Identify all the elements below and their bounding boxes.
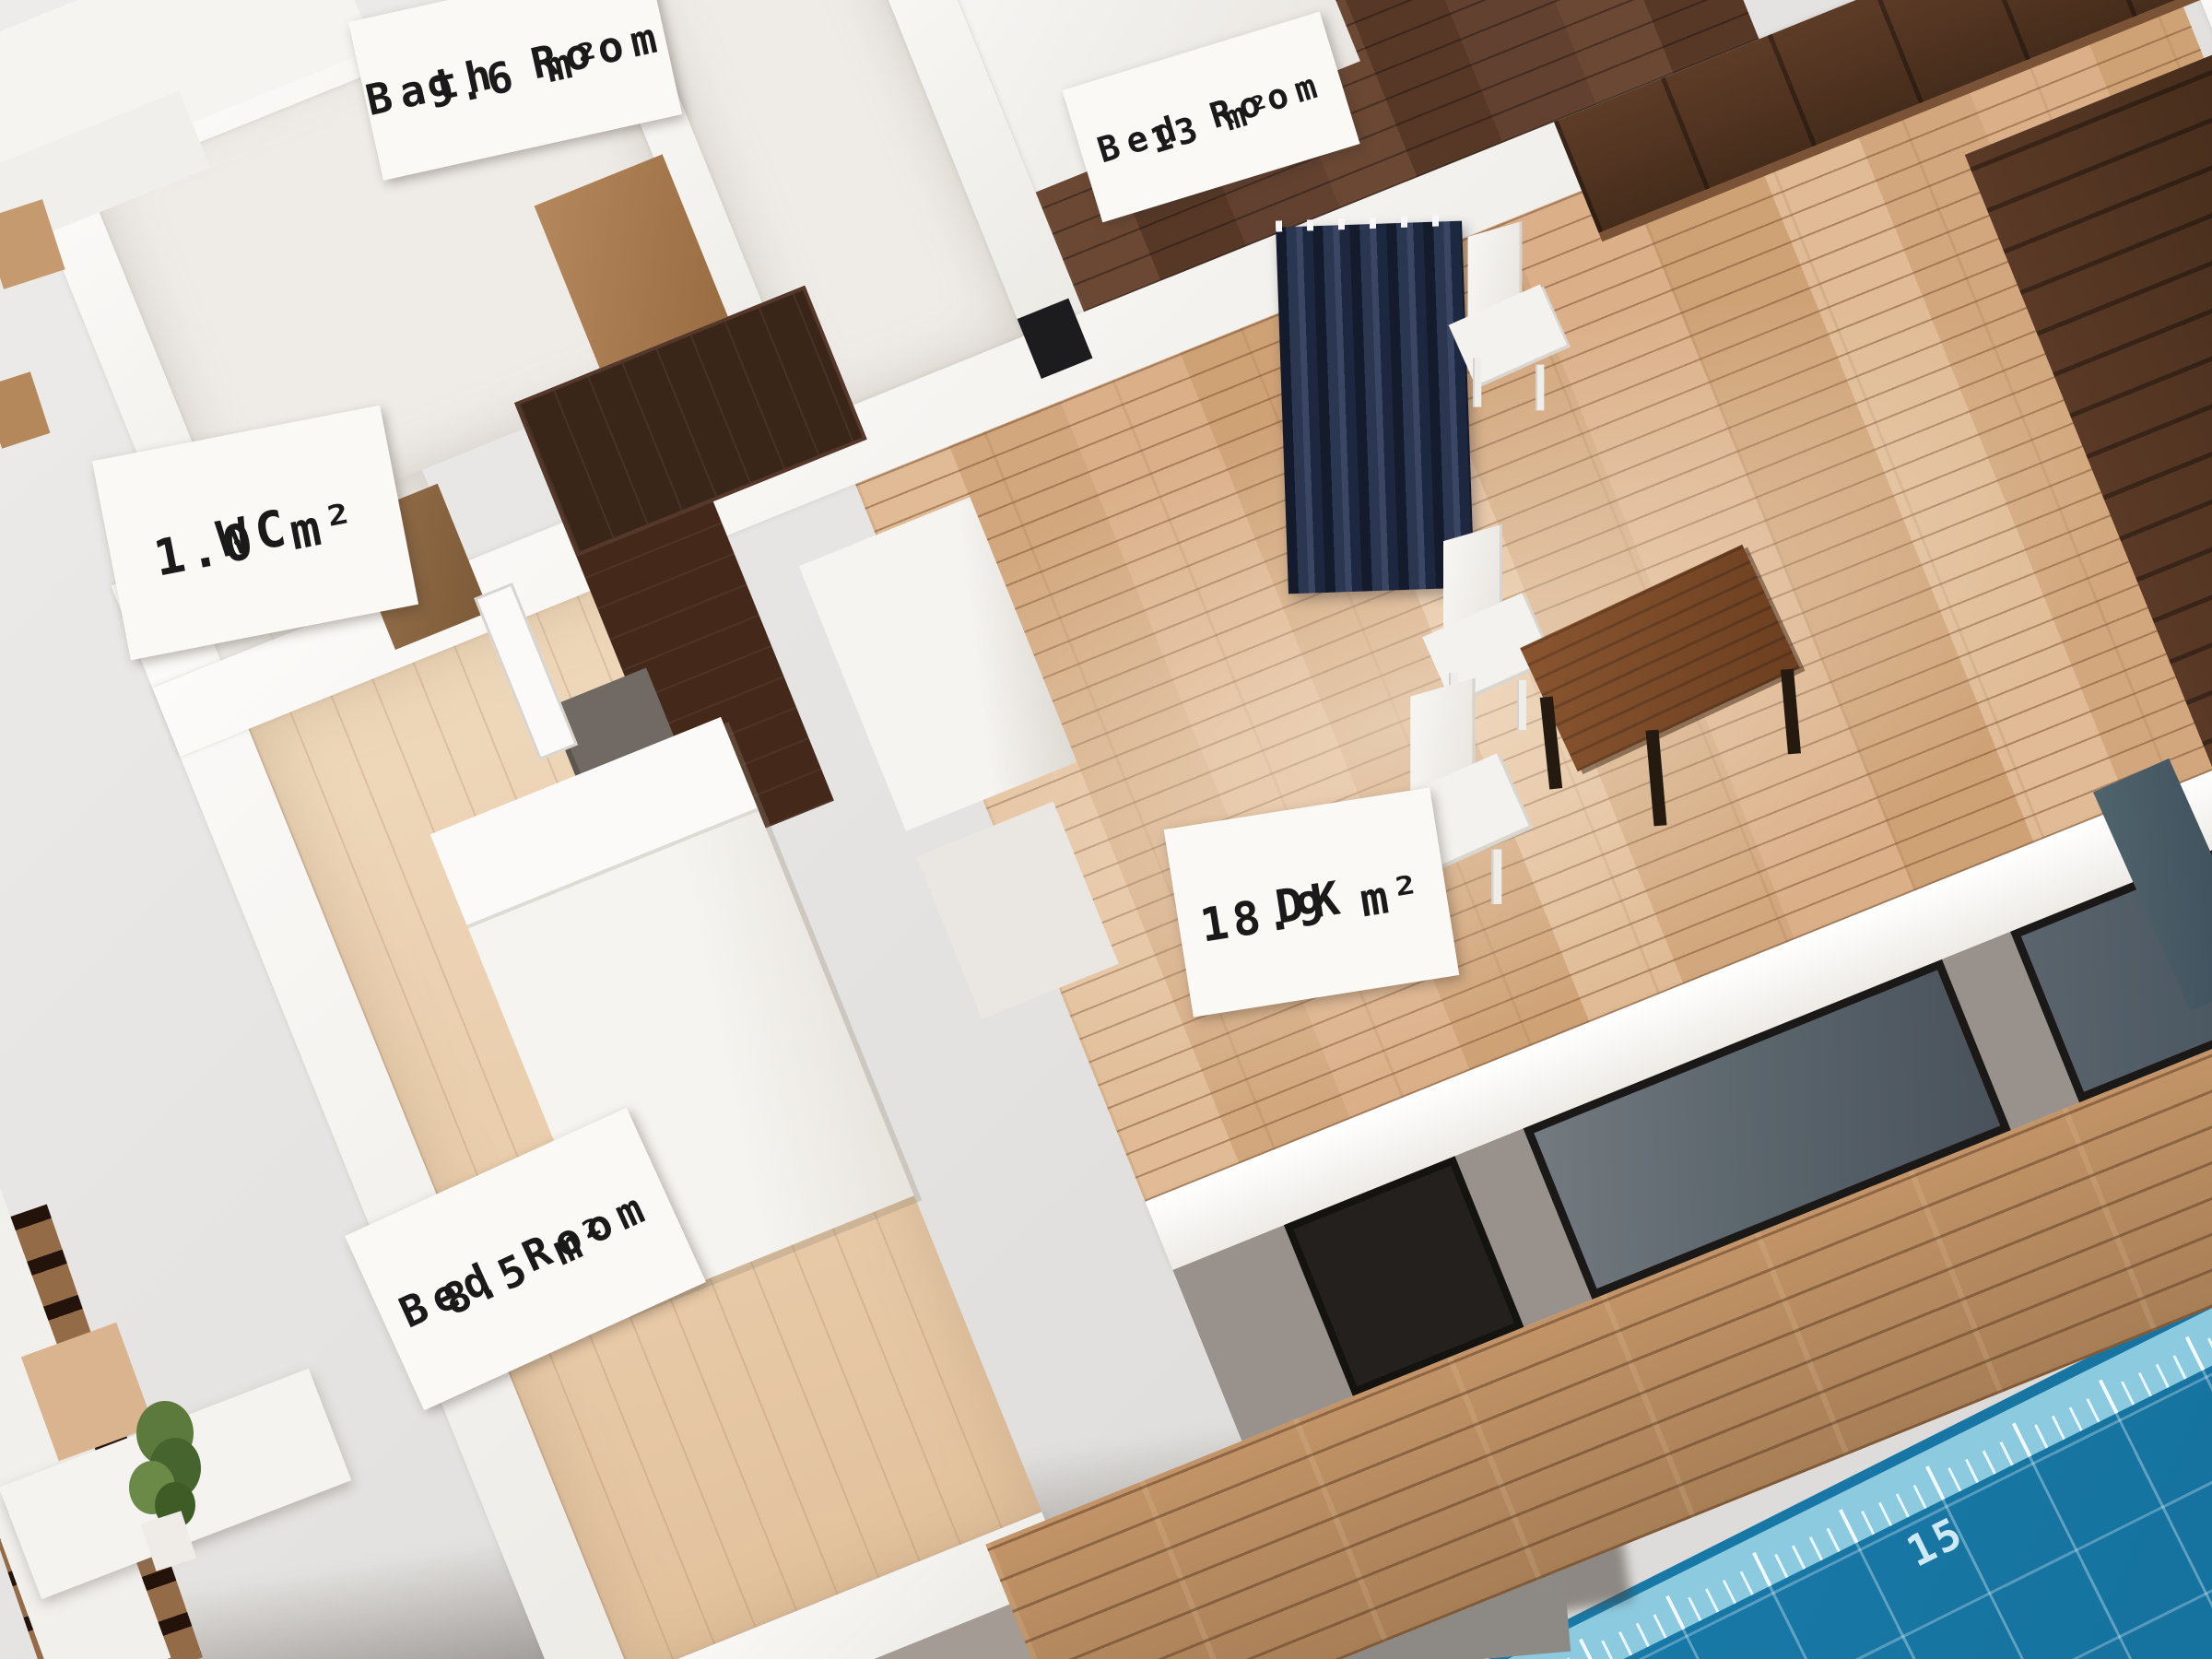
chair-leg (1491, 850, 1501, 904)
architecture-model (0, 0, 2212, 1659)
model-photo-scene: 15 (0, 0, 2212, 1659)
chair-seat (1449, 285, 1567, 386)
dining-chair (1453, 229, 1580, 406)
chair-leg (1473, 358, 1481, 406)
chair-leg (1535, 365, 1544, 411)
